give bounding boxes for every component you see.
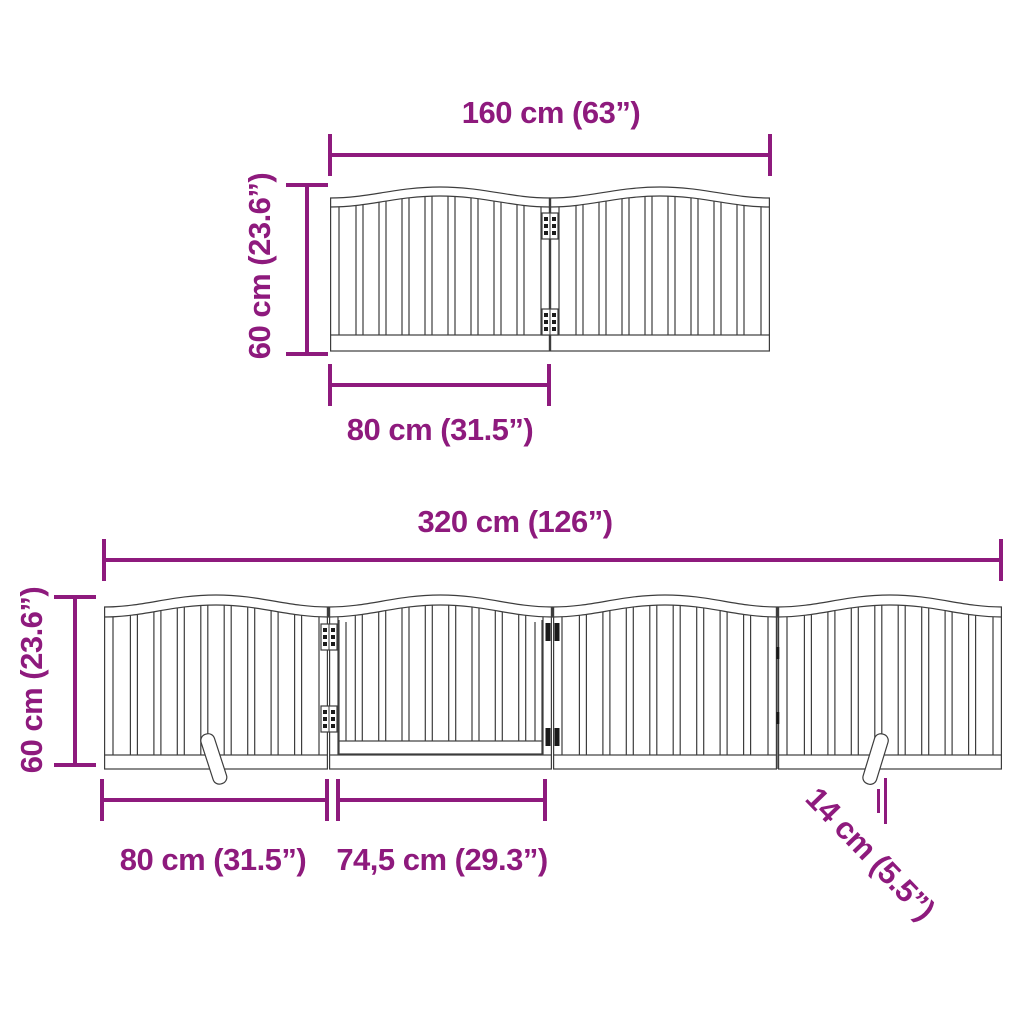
- bottom-height-label: 60 cm (23.6”): [14, 587, 50, 774]
- top-height-dimension-line: [305, 185, 309, 354]
- two-panel-gate-drawing: [330, 184, 770, 356]
- dimension-diagram-canvas: 160 cm (63”) 60 cm (23.6”) 80 cm (31.5”)…: [0, 0, 1024, 1024]
- bottom-height-dimension-line: [73, 597, 77, 765]
- top-panel-width-dimension-line: [330, 383, 549, 387]
- foot-dimension-line: [884, 778, 887, 824]
- top-height-label: 60 cm (23.6”): [242, 173, 278, 360]
- top-total-width-label: 160 cm (63”): [462, 95, 640, 131]
- four-panel-gate-drawing: [104, 592, 1002, 807]
- bottom-panel-width-dimension-line: [102, 798, 327, 802]
- top-total-width-dimension-line: [330, 153, 770, 157]
- door-width-label: 74,5 cm (29.3”): [336, 842, 547, 878]
- bottom-total-width-dimension-line: [104, 558, 1001, 562]
- bottom-total-width-label: 320 cm (126”): [417, 504, 612, 540]
- foot-dimension-line: [877, 789, 880, 813]
- top-panel-width-label: 80 cm (31.5”): [347, 412, 534, 448]
- bottom-panel-width-label: 80 cm (31.5”): [120, 842, 307, 878]
- door-width-dimension-line: [338, 798, 545, 802]
